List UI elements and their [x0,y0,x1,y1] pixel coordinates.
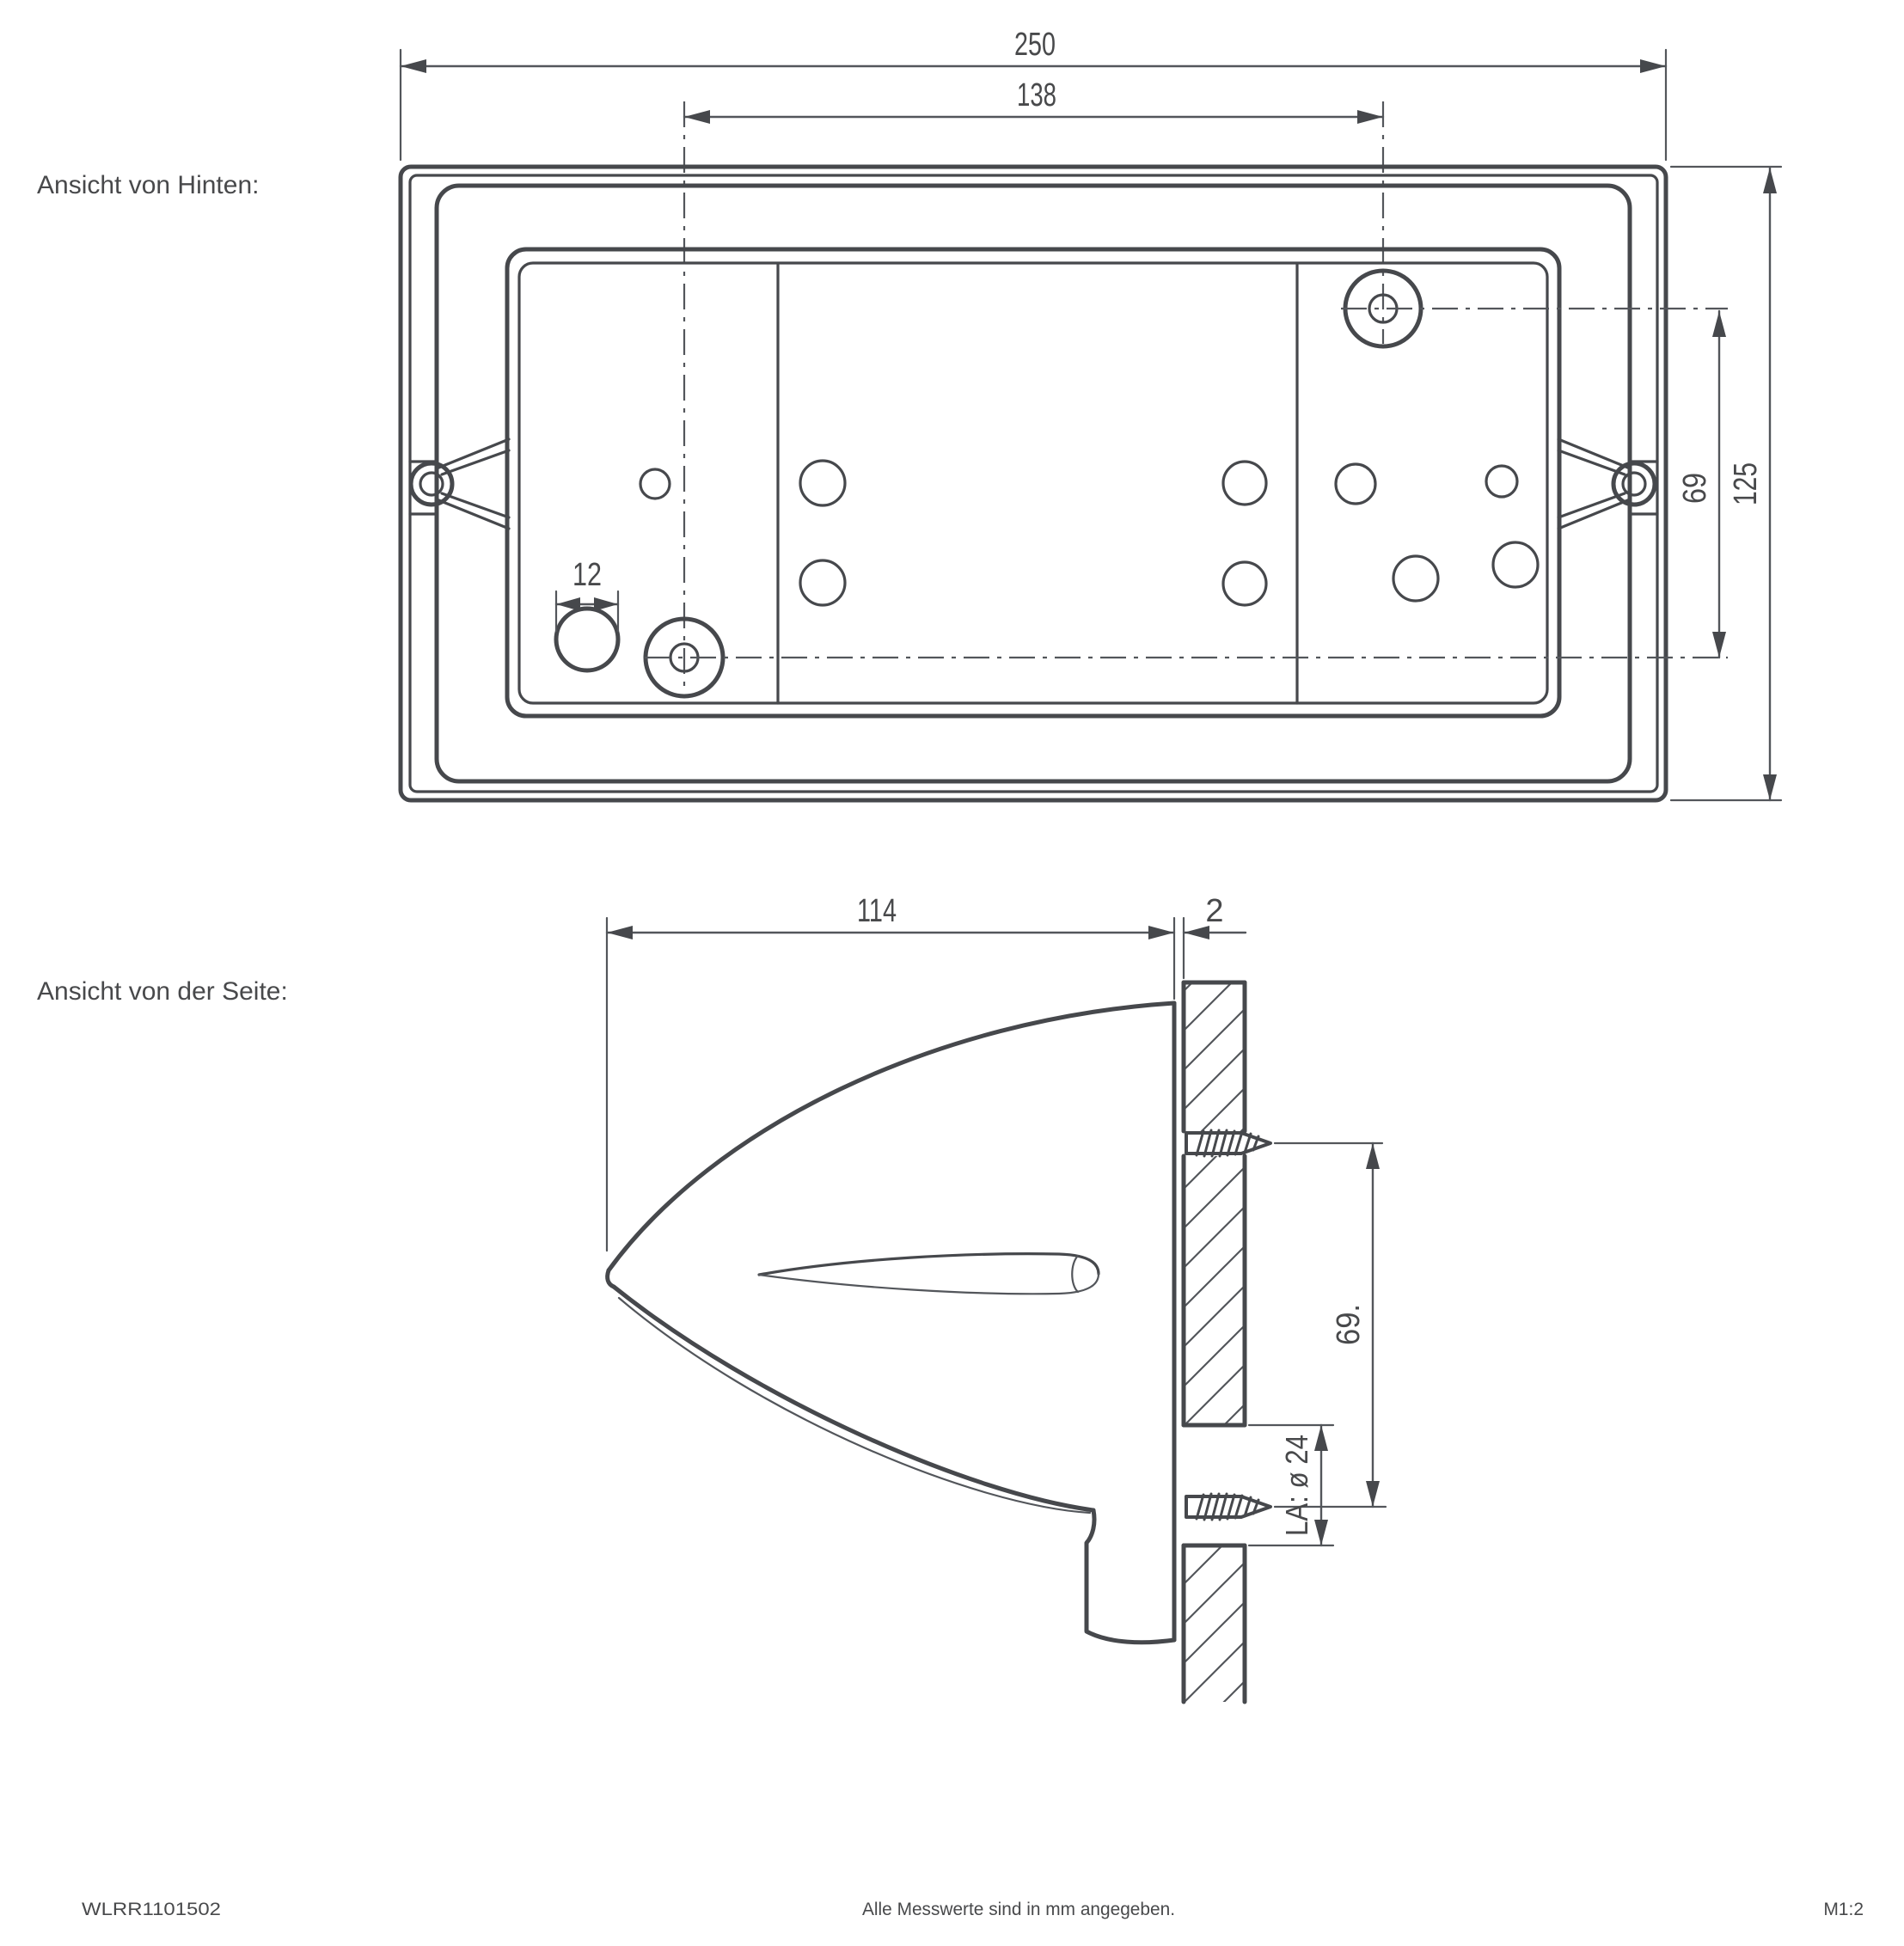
dim-114-value: 114 [857,893,897,929]
dim-la24-value: LA: ø 24 [1279,1435,1314,1536]
lamp-profile [608,1003,1174,1643]
dimension-keyhole-spacing-v: 69 [1677,311,1726,658]
back-view-drawing: Ansicht von Hinten: 250 138 [37,27,1781,800]
lamp-tube [759,1254,1099,1294]
dimension-depth: 114 2 [607,893,1246,1251]
mounting-ear-left [410,439,509,529]
dim-12-value: 12 [572,557,602,593]
dim-69-value: 69 [1677,473,1713,504]
mounting-ear-right [1558,439,1657,529]
back-view-label: Ansicht von Hinten: [37,171,259,199]
mounting-screw-top [1186,1130,1270,1156]
footer-part-number: WLRR1101502 [82,1900,221,1919]
footer-scale: M1:2 [1823,1900,1864,1919]
plate-holes [556,461,1538,670]
wall-section [1184,982,1245,1702]
mounting-plate [507,249,1559,716]
dim-138-value: 138 [1017,77,1056,113]
footer-note: Alle Messwerte sind in mm angegeben. [862,1900,1175,1919]
dimension-keyhole-spacing-h: 138 [684,77,1383,693]
dim-125-value: 125 [1728,462,1764,505]
drawing-sheet: Ansicht von Hinten: 250 138 [0,0,1904,1946]
mounting-screw-bottom [1186,1494,1270,1520]
dim-69dot-value: 69. [1331,1304,1367,1345]
footer: WLRR1101502 Alle Messwerte sind in mm an… [82,1900,1864,1919]
technical-drawing-page: { "drawing": { "back_view": { "label": "… [0,0,1904,1946]
side-view-label: Ansicht von der Seite: [37,977,288,1006]
dim-2-value: 2 [1205,893,1223,929]
dimension-wall-cutout: LA: ø 24 [1249,1425,1333,1545]
dim-250-value: 250 [1014,27,1056,63]
side-view-drawing: Ansicht von der Seite: 114 2 [37,893,1386,1702]
